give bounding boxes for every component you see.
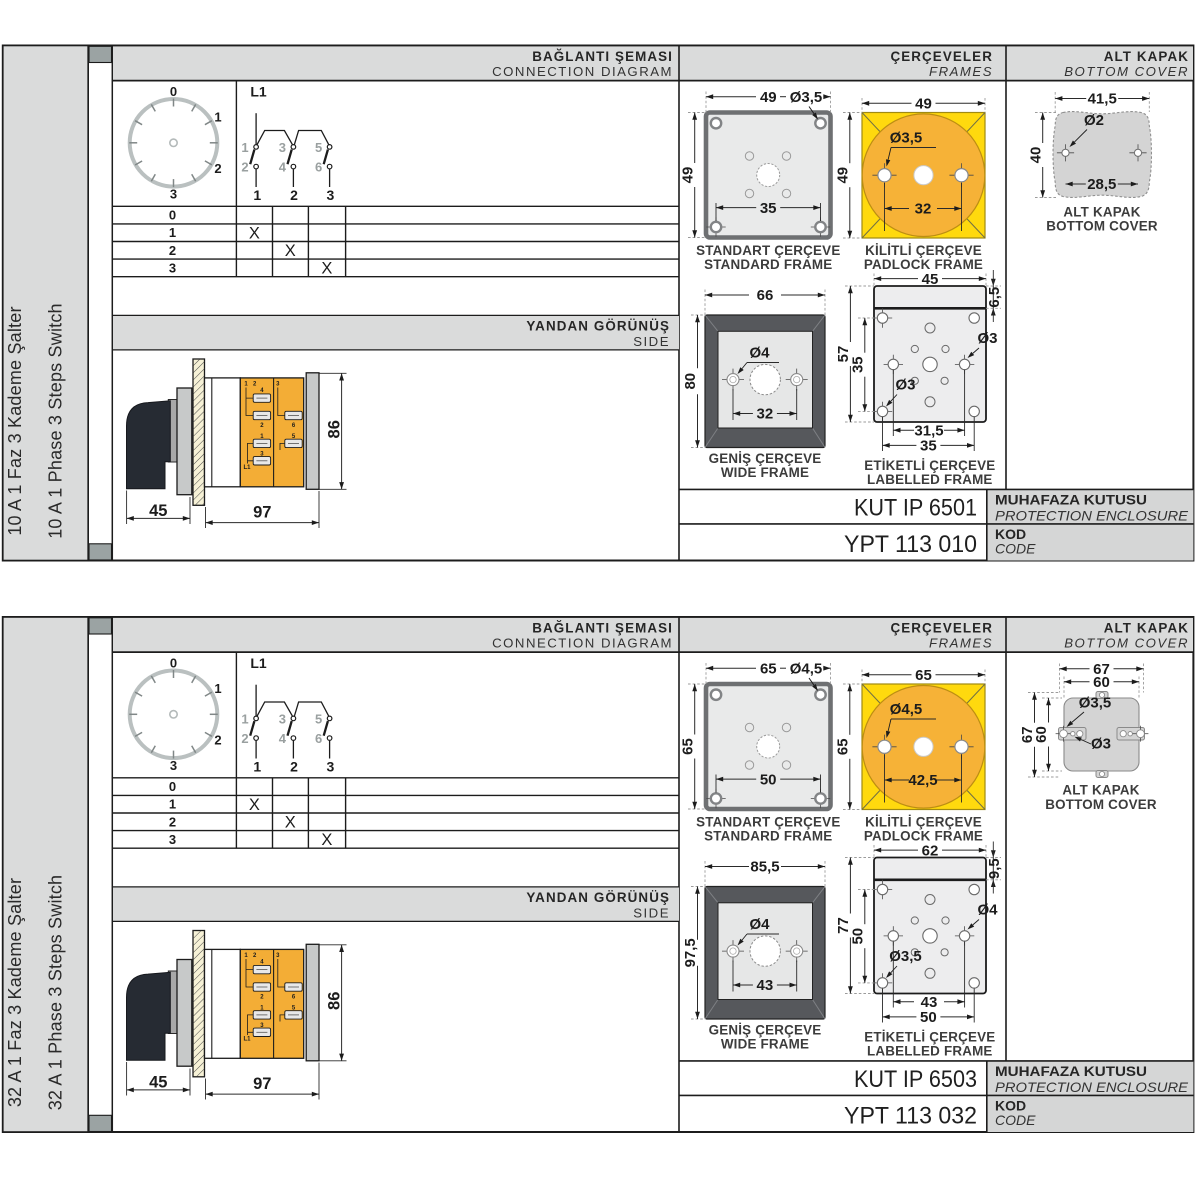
svg-text:32 A 1 Faz 3 Kademe Şalter: 32 A 1 Faz 3 Kademe Şalter — [5, 878, 25, 1107]
svg-text:0: 0 — [169, 779, 176, 794]
svg-text:6: 6 — [315, 160, 322, 175]
svg-text:ALT KAPAK: ALT KAPAK — [1104, 49, 1189, 64]
svg-text:32: 32 — [757, 406, 774, 423]
svg-text:65: 65 — [760, 660, 777, 677]
svg-text:97: 97 — [253, 504, 271, 522]
svg-text:41,5: 41,5 — [1088, 91, 1117, 108]
svg-text:62: 62 — [922, 842, 939, 859]
svg-text:40: 40 — [1027, 147, 1044, 164]
svg-text:42,5: 42,5 — [908, 772, 937, 789]
svg-text:X: X — [321, 260, 332, 278]
svg-text:3: 3 — [169, 832, 176, 847]
svg-text:SIDE: SIDE — [633, 905, 670, 920]
svg-text:97,5: 97,5 — [682, 938, 699, 967]
svg-text:1: 1 — [214, 110, 221, 125]
svg-text:Ø2: Ø2 — [1084, 112, 1104, 129]
svg-text:SIDE: SIDE — [633, 334, 670, 349]
svg-text:1: 1 — [214, 681, 221, 696]
svg-text:5: 5 — [315, 140, 322, 155]
svg-text:3: 3 — [170, 187, 177, 202]
svg-text:5: 5 — [315, 712, 322, 727]
svg-text:28,5: 28,5 — [1087, 176, 1116, 193]
svg-text:BOTTOM COVER: BOTTOM COVER — [1045, 797, 1157, 812]
svg-text:6: 6 — [315, 731, 322, 746]
svg-text:STANDART ÇERÇEVE: STANDART ÇERÇEVE — [696, 815, 840, 830]
svg-text:X: X — [285, 242, 296, 260]
svg-text:10 A 1 Phase 3 Steps Switch: 10 A 1 Phase 3 Steps Switch — [46, 303, 66, 539]
svg-text:4: 4 — [279, 731, 287, 746]
svg-text:CONNECTION DIAGRAM: CONNECTION DIAGRAM — [492, 64, 673, 79]
svg-text:35: 35 — [920, 438, 937, 455]
svg-text:66: 66 — [757, 287, 774, 304]
svg-text:60: 60 — [1093, 674, 1110, 691]
svg-text:Ø3: Ø3 — [1091, 736, 1111, 753]
svg-text:GENİŞ ÇERÇEVE: GENİŞ ÇERÇEVE — [709, 1023, 822, 1038]
svg-text:45: 45 — [922, 271, 939, 288]
svg-text:32 A 1 Phase 3 Steps Switch: 32 A 1 Phase 3 Steps Switch — [46, 875, 66, 1111]
svg-text:Ø3: Ø3 — [895, 377, 915, 394]
svg-text:L1: L1 — [250, 655, 267, 671]
svg-text:CONNECTION DIAGRAM: CONNECTION DIAGRAM — [492, 636, 673, 651]
svg-text:49: 49 — [915, 96, 932, 113]
svg-text:85,5: 85,5 — [750, 859, 779, 876]
svg-text:3: 3 — [170, 758, 177, 773]
svg-text:Ø3,5: Ø3,5 — [890, 130, 923, 147]
svg-text:ALT KAPAK: ALT KAPAK — [1104, 620, 1189, 635]
svg-text:50: 50 — [920, 1009, 937, 1026]
svg-text:Ø4: Ø4 — [749, 916, 770, 933]
svg-text:49: 49 — [679, 167, 696, 184]
svg-text:FRAMES: FRAMES — [929, 636, 993, 651]
svg-text:BOTTOM COVER: BOTTOM COVER — [1046, 219, 1158, 234]
svg-text:0: 0 — [170, 84, 177, 99]
svg-text:L1: L1 — [250, 83, 267, 99]
svg-text:49: 49 — [760, 89, 777, 106]
svg-text:1: 1 — [241, 712, 248, 727]
svg-text:ETİKETLİ ÇERÇEVE: ETİKETLİ ÇERÇEVE — [864, 458, 995, 473]
svg-text:X: X — [321, 831, 332, 849]
svg-text:FRAMES: FRAMES — [929, 64, 993, 79]
svg-text:Ø3,5: Ø3,5 — [889, 948, 922, 965]
svg-text:0: 0 — [169, 208, 176, 223]
svg-text:86: 86 — [326, 420, 344, 438]
svg-text:Ø4: Ø4 — [749, 345, 770, 362]
svg-text:KİLİTLİ ÇERÇEVE: KİLİTLİ ÇERÇEVE — [865, 243, 982, 258]
svg-text:KUT IP 6501: KUT IP 6501 — [854, 494, 977, 521]
svg-text:X: X — [249, 796, 260, 814]
svg-text:Ø3,5: Ø3,5 — [1079, 695, 1112, 712]
svg-text:3: 3 — [327, 758, 335, 774]
svg-text:2: 2 — [214, 161, 221, 176]
svg-text:BAĞLANTI ŞEMASI: BAĞLANTI ŞEMASI — [532, 49, 673, 64]
svg-text:Ø3: Ø3 — [977, 330, 997, 347]
svg-text:2: 2 — [214, 733, 221, 748]
svg-text:L1: L1 — [243, 465, 251, 471]
svg-text:86: 86 — [326, 992, 344, 1010]
svg-text:65: 65 — [679, 738, 696, 755]
svg-text:1: 1 — [253, 187, 261, 203]
svg-text:WIDE FRAME: WIDE FRAME — [721, 465, 809, 480]
svg-text:10 A 1 Faz 3 Kademe Şalter: 10 A 1 Faz 3 Kademe Şalter — [5, 306, 25, 535]
svg-text:ALT KAPAK: ALT KAPAK — [1063, 205, 1140, 220]
svg-text:45: 45 — [149, 1074, 167, 1092]
svg-text:1: 1 — [253, 758, 261, 774]
svg-text:35: 35 — [760, 200, 777, 217]
svg-text:2: 2 — [169, 814, 176, 829]
svg-text:4: 4 — [279, 160, 287, 175]
svg-text:BAĞLANTI ŞEMASI: BAĞLANTI ŞEMASI — [532, 620, 673, 635]
svg-text:3: 3 — [327, 187, 335, 203]
svg-text:STANDARD FRAME: STANDARD FRAME — [704, 829, 832, 844]
svg-text:35: 35 — [849, 356, 866, 373]
svg-text:BOTTOM COVER: BOTTOM COVER — [1064, 64, 1189, 79]
svg-text:KİLİTLİ ÇERÇEVE: KİLİTLİ ÇERÇEVE — [865, 815, 982, 830]
svg-text:43: 43 — [757, 977, 774, 994]
svg-text:LABELLED FRAME: LABELLED FRAME — [867, 472, 993, 487]
svg-text:X: X — [249, 224, 260, 242]
svg-text:MUHAFAZA KUTUSU: MUHAFAZA KUTUSU — [995, 491, 1147, 507]
svg-text:50: 50 — [849, 928, 866, 945]
svg-text:60: 60 — [1033, 726, 1050, 743]
svg-text:Ø4,5: Ø4,5 — [890, 701, 923, 718]
svg-text:1: 1 — [169, 797, 176, 812]
svg-text:1: 1 — [169, 225, 176, 240]
svg-text:PROTECTION ENCLOSURE: PROTECTION ENCLOSURE — [995, 1079, 1189, 1095]
svg-text:9,5: 9,5 — [986, 858, 1003, 879]
svg-text:65: 65 — [915, 667, 932, 684]
svg-text:CODE: CODE — [995, 1112, 1036, 1128]
svg-text:3: 3 — [279, 712, 286, 727]
svg-text:2: 2 — [241, 160, 248, 175]
svg-text:2: 2 — [290, 758, 298, 774]
svg-text:3: 3 — [279, 140, 286, 155]
svg-text:CODE: CODE — [995, 540, 1036, 556]
svg-text:0: 0 — [170, 656, 177, 671]
svg-text:1: 1 — [241, 140, 248, 155]
svg-text:STANDARD FRAME: STANDARD FRAME — [704, 257, 832, 272]
svg-text:ÇERÇEVELER: ÇERÇEVELER — [890, 620, 993, 635]
svg-text:45: 45 — [149, 502, 167, 520]
svg-text:65: 65 — [834, 738, 851, 755]
svg-text:X: X — [285, 813, 296, 831]
svg-text:ETİKETLİ ÇERÇEVE: ETİKETLİ ÇERÇEVE — [864, 1029, 995, 1044]
svg-text:BOTTOM COVER: BOTTOM COVER — [1064, 636, 1189, 651]
svg-text:80: 80 — [682, 373, 699, 390]
svg-text:3: 3 — [169, 260, 176, 275]
svg-text:Ø3,5: Ø3,5 — [790, 89, 823, 106]
svg-text:ALT KAPAK: ALT KAPAK — [1062, 783, 1139, 798]
svg-text:YANDAN GÖRÜNÜŞ: YANDAN GÖRÜNÜŞ — [526, 890, 670, 905]
svg-text:MUHAFAZA KUTUSU: MUHAFAZA KUTUSU — [995, 1063, 1147, 1079]
svg-text:GENİŞ ÇERÇEVE: GENİŞ ÇERÇEVE — [709, 451, 822, 466]
svg-text:2: 2 — [241, 731, 248, 746]
svg-text:WIDE FRAME: WIDE FRAME — [721, 1037, 809, 1052]
svg-text:ÇERÇEVELER: ÇERÇEVELER — [890, 49, 993, 64]
svg-text:LABELLED FRAME: LABELLED FRAME — [867, 1043, 993, 1058]
svg-text:50: 50 — [760, 771, 777, 788]
svg-text:KUT IP 6503: KUT IP 6503 — [854, 1066, 977, 1093]
svg-text:2: 2 — [290, 187, 298, 203]
svg-text:YPT 113 010: YPT 113 010 — [844, 531, 977, 558]
svg-text:Ø4,5: Ø4,5 — [790, 660, 823, 677]
svg-text:32: 32 — [915, 201, 932, 218]
svg-text:YANDAN GÖRÜNÜŞ: YANDAN GÖRÜNÜŞ — [526, 319, 670, 334]
svg-text:Ø4: Ø4 — [977, 902, 998, 919]
svg-text:L1: L1 — [243, 1036, 251, 1042]
svg-text:STANDART ÇERÇEVE: STANDART ÇERÇEVE — [696, 243, 840, 258]
svg-text:97: 97 — [253, 1075, 271, 1093]
svg-text:2: 2 — [169, 243, 176, 258]
svg-text:PROTECTION ENCLOSURE: PROTECTION ENCLOSURE — [995, 507, 1189, 523]
svg-text:YPT 113 032: YPT 113 032 — [844, 1102, 977, 1129]
svg-text:6,5: 6,5 — [986, 287, 1003, 308]
svg-text:49: 49 — [834, 167, 851, 184]
